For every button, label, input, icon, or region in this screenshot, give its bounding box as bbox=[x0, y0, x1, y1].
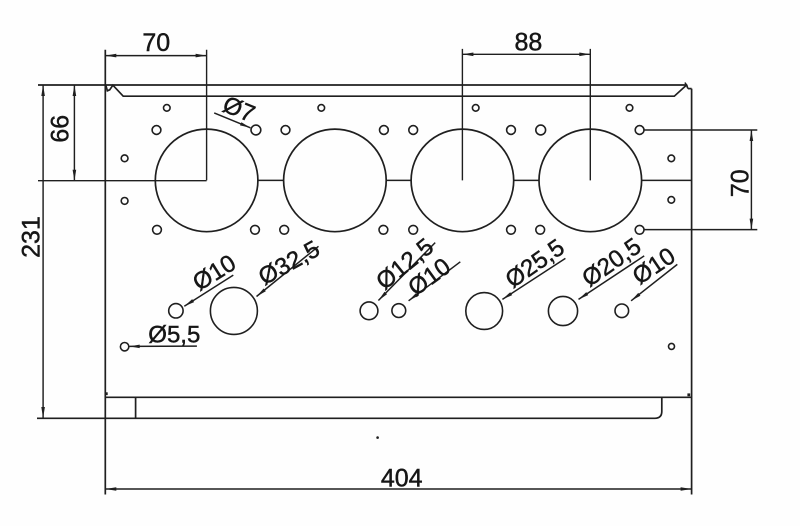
svg-text:231: 231 bbox=[17, 216, 45, 258]
svg-text:70: 70 bbox=[142, 29, 170, 57]
svg-text:Ø5,5: Ø5,5 bbox=[148, 322, 200, 349]
svg-text:66: 66 bbox=[47, 115, 75, 143]
svg-text:404: 404 bbox=[381, 464, 423, 492]
svg-text:70: 70 bbox=[727, 169, 755, 197]
svg-text:88: 88 bbox=[514, 28, 542, 56]
